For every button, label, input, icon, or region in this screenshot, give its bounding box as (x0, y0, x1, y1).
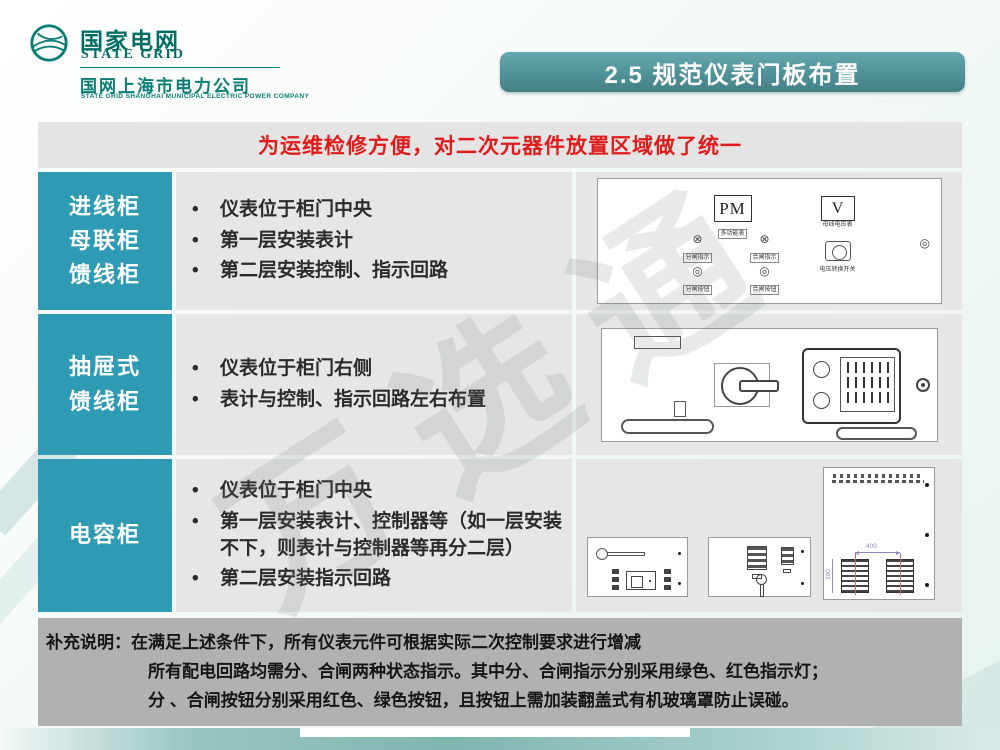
note-line-1: 补充说明：在满足上述条件下，所有仪表元件可根据实际二次控制要求进行增减 (46, 628, 954, 657)
note-line-3: 分 、合闸按钮分别采用红色、绿色按钮，且按钮上需加装翻盖式有机玻璃罩防止误碰。 (46, 686, 954, 715)
indicator-button-icon (916, 378, 930, 392)
pushbutton-icon: ◎ (674, 265, 722, 278)
vent-grille (841, 559, 869, 593)
slide: 国家电网 STATE GRID 国网上海市电力公司 STATE GRID SHA… (0, 0, 1000, 750)
hinge-dot (925, 533, 929, 537)
bullet-item: 第二层安装指示回路 (180, 566, 568, 593)
table-title: 为运维检修方便，对二次元器件放置区域做了统一 (38, 122, 962, 168)
dimension-line-vertical (832, 559, 833, 593)
hinge-dot (925, 483, 929, 487)
category-line: 母联柜 (69, 224, 141, 258)
bottom-band-notch (300, 728, 690, 737)
controller-display (626, 571, 656, 590)
diagram-cell-capacitor: 400 100 (576, 459, 962, 612)
category-cell-drawer: 抽屉式 馈线柜 (38, 314, 172, 455)
state-grid-logo: 国家电网 STATE GRID 国网上海市电力公司 STATE GRID SHA… (26, 20, 326, 110)
drawer-handle-right (836, 427, 917, 440)
drawer-door-diagram (601, 328, 938, 442)
hinge-dot (925, 583, 929, 587)
voltmeter-caption: 母线电压表 (803, 221, 873, 229)
bullet-item: 仪表位于柜门右侧 (180, 356, 568, 383)
table-row: 抽屉式 馈线柜 仪表位于柜门右侧 表计与控制、指示回路左右布置 (38, 314, 962, 455)
note-label: 补充说明： (46, 633, 131, 652)
logo-divider (80, 67, 280, 68)
category-cell-capacitor: 电容柜 (38, 459, 172, 612)
small-window (674, 401, 686, 417)
bullets-cell: 仪表位于柜门右侧 表计与控制、指示回路左右布置 (176, 314, 572, 455)
note-text: 在满足上述条件下，所有仪表元件可根据实际二次控制要求进行增减 (131, 633, 641, 652)
close-indicator-group: ⊗ 合闸指示 (741, 233, 789, 264)
digit-row (845, 377, 890, 388)
label-tab (783, 569, 791, 573)
brand-name-en: STATE GRID (81, 47, 185, 63)
multifunction-meter (802, 348, 901, 424)
nameplate (634, 336, 681, 349)
rotary-switch-handle (739, 380, 779, 392)
open-indicator-group: ⊗ 分闸指示 (674, 233, 722, 264)
table-row: 电容柜 仪表位于柜门中央 第一层安装表计、控制器等（如一层安装不下，则表计与控制… (38, 459, 962, 612)
table-row: 进线柜 母联柜 馈线柜 仪表位于柜门中央 第一层安装表计 第二层安装控制、指示回… (38, 172, 962, 310)
meter-door-diagram: PM 多功能表 V 母线电压表 ⊗ 分闸指示 ⊗ 合闸指示 (597, 178, 942, 304)
label-tag-row (832, 480, 924, 483)
meter-button-icon (813, 361, 830, 378)
hinge-dot (678, 552, 681, 555)
bullet-item: 第一层安装表计、控制器等（如一层安装不下，则表计与控制器等再分二层） (180, 509, 568, 563)
category-line: 馈线柜 (69, 258, 141, 292)
close-button-group: ◎ 合闸按钮 (741, 265, 789, 296)
button-column (664, 569, 671, 591)
capacitor-panel-c: 400 100 (823, 467, 935, 600)
meter-button-icon (813, 392, 830, 409)
category-line: 电容柜 (69, 518, 141, 552)
company-name-en: STATE GRID SHANGHAI MUNICIPAL ELECTRIC P… (81, 93, 309, 100)
bullet-item: 仪表位于柜门中央 (180, 478, 568, 505)
diagram-cell-panel-front: PM 多功能表 V 母线电压表 ⊗ 分闸指示 ⊗ 合闸指示 (576, 172, 962, 310)
capacitor-panel-b (708, 537, 811, 597)
section-title-banner: 2.5 规范仪表门板布置 (500, 52, 965, 92)
dimension-value-width: 400 (866, 543, 877, 550)
bullets-cell: 仪表位于柜门中央 第一层安装表计、控制器等（如一层安装不下，则表计与控制器等再分… (176, 459, 572, 612)
globe-icon (28, 22, 70, 64)
bullet-item: 第二层安装控制、指示回路 (180, 258, 568, 285)
digit-row (845, 392, 890, 403)
dimension-value-height: 100 (825, 569, 832, 580)
note-line-2: 所有配电回路均需分、合闸两种状态指示。其中分、合闸指示分别采用绿色、红色指示灯； (46, 657, 954, 686)
supplementary-note: 补充说明：在满足上述条件下，所有仪表元件可根据实际二次控制要求进行增减 所有配电… (38, 618, 962, 726)
bullet-item: 表计与控制、指示回路左右布置 (180, 387, 568, 414)
category-line: 抽屉式 (69, 350, 141, 384)
voltage-switch-icon (825, 241, 851, 261)
panel-lock-icon: ◎ (920, 237, 930, 250)
door-handle-bar (607, 552, 645, 556)
meter-display (840, 357, 895, 412)
category-cell-incoming: 进线柜 母联柜 馈线柜 (38, 172, 172, 310)
open-button-caption: 分闸按钮 (683, 285, 711, 295)
category-line: 进线柜 (69, 190, 141, 224)
button-column (612, 569, 619, 591)
close-button-caption: 合闸按钮 (750, 285, 778, 295)
bullet-item: 第一层安装表计 (180, 228, 568, 255)
controller-block (781, 547, 794, 565)
open-indicator-caption: 分闸指示 (683, 253, 711, 263)
controller-block (747, 546, 767, 570)
pushbutton-icon: ◎ (741, 265, 789, 278)
diagram-cell-drawer-front (576, 314, 962, 455)
voltage-switch-group: 电压转换开关 (806, 241, 870, 274)
layout-table: 为运维检修方便，对二次元器件放置区域做了统一 进线柜 母联柜 馈线柜 仪表位于柜… (38, 122, 962, 726)
vent-grille (886, 559, 914, 593)
dimension-line-horizontal (855, 552, 900, 553)
bullets-cell: 仪表位于柜门中央 第一层安装表计 第二层安装控制、指示回路 (176, 172, 572, 310)
bullet-item: 仪表位于柜门中央 (180, 197, 568, 224)
indicator-lamp-icon: ⊗ (741, 233, 789, 246)
voltage-switch-caption: 电压转换开关 (806, 266, 870, 274)
close-indicator-caption: 合闸指示 (750, 253, 778, 263)
indicator-lamp-row (832, 474, 924, 478)
voltmeter-group: V 母线电压表 (803, 196, 873, 229)
pm-meter-box: PM (714, 195, 752, 222)
voltmeter-box: V (821, 196, 855, 221)
open-button-group: ◎ 分闸按钮 (674, 265, 722, 296)
drawer-handle-left (621, 419, 714, 434)
rotary-switch (714, 363, 770, 407)
hinge-dot (801, 582, 804, 585)
capacitor-panel-a (587, 537, 688, 597)
indicator-lamp-icon: ⊗ (674, 233, 722, 246)
door-key-stem (760, 584, 764, 597)
hinge-dot (801, 550, 804, 553)
hinge-dot (678, 582, 681, 585)
category-line: 馈线柜 (69, 385, 141, 419)
digit-row (845, 362, 890, 373)
